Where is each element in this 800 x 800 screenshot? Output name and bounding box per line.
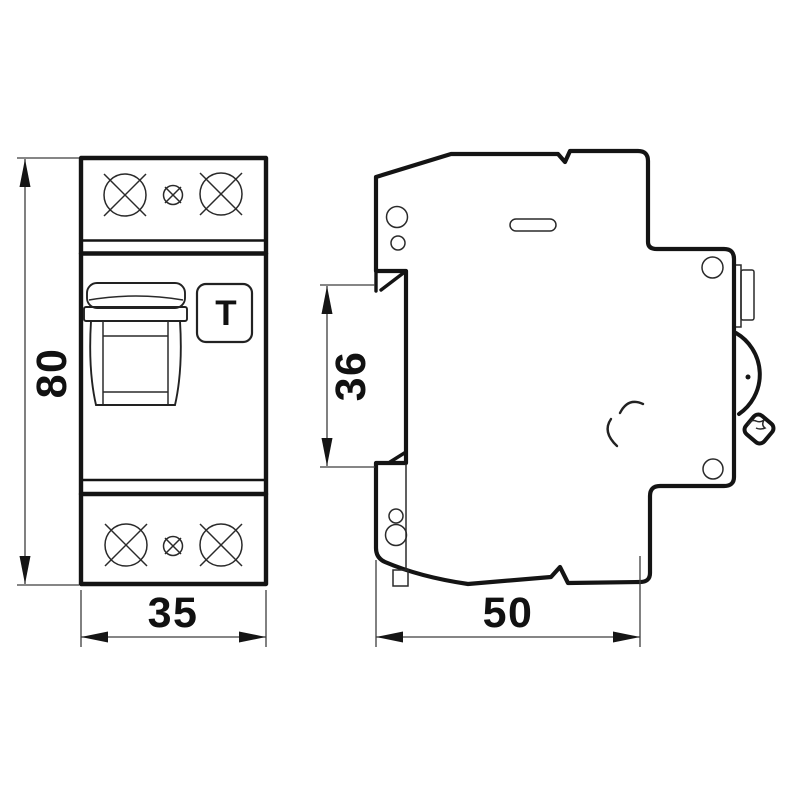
dim-label-width: 35 bbox=[148, 589, 199, 637]
side-profile-outline bbox=[376, 151, 734, 584]
dim-label-height: 80 bbox=[28, 348, 76, 399]
dimension-height: 80 bbox=[17, 158, 79, 585]
technical-drawing: T bbox=[0, 0, 800, 800]
toggle-switch[interactable] bbox=[84, 283, 187, 405]
terminal-screws-bottom bbox=[105, 524, 242, 566]
arrow-left-icon bbox=[376, 632, 403, 643]
drawing-canvas: T bbox=[0, 0, 800, 800]
front-view: T bbox=[81, 158, 266, 584]
screw-top-middle-icon bbox=[164, 186, 183, 205]
dim-label-depth: 50 bbox=[483, 589, 534, 637]
arrow-up-icon bbox=[20, 159, 31, 187]
dimension-width: 35 bbox=[81, 589, 266, 647]
arrow-left-icon bbox=[81, 632, 108, 643]
mechanism-boss-arc bbox=[736, 333, 760, 414]
test-button-label: T bbox=[215, 294, 236, 333]
dimension-recess: 36 bbox=[320, 285, 375, 467]
arrow-down-icon bbox=[20, 556, 31, 584]
arrow-down-icon bbox=[322, 438, 333, 466]
toggle-lever-side[interactable] bbox=[742, 412, 776, 446]
side-hole-right-upper bbox=[702, 257, 723, 278]
lever-break-line bbox=[748, 420, 765, 429]
screw-top-left-icon bbox=[104, 174, 146, 216]
terminal-screws-top bbox=[104, 173, 242, 216]
screw-bottom-middle-icon bbox=[164, 537, 183, 556]
din-hook-bottom-chamfer bbox=[390, 452, 406, 462]
arrow-right-icon bbox=[239, 632, 266, 643]
test-button[interactable]: T bbox=[197, 284, 252, 342]
pivot-dot bbox=[746, 375, 751, 380]
dimension-depth: 50 bbox=[376, 556, 640, 647]
side-view bbox=[376, 151, 776, 586]
screw-bottom-left-icon bbox=[105, 524, 147, 566]
side-hole-right-lower bbox=[703, 459, 723, 479]
terminal-block-cover bbox=[741, 270, 754, 320]
din-clip-tab[interactable] bbox=[393, 570, 408, 586]
side-slot bbox=[510, 219, 556, 231]
toggle-collar bbox=[84, 307, 187, 321]
side-hole-flange-small bbox=[389, 509, 403, 523]
din-hook-top-diagonal bbox=[381, 271, 406, 290]
front-body-outline bbox=[81, 158, 266, 584]
side-hole-top-small bbox=[391, 236, 405, 250]
window-arc-upper bbox=[620, 402, 643, 413]
arrow-up-icon bbox=[322, 286, 333, 314]
screw-top-right-icon bbox=[200, 173, 242, 215]
dim-label-recess: 36 bbox=[327, 351, 375, 402]
screw-bottom-right-icon bbox=[200, 524, 242, 566]
arrow-right-icon bbox=[613, 632, 640, 643]
window-arc-lower bbox=[608, 419, 617, 446]
side-hole-flange-large bbox=[386, 525, 407, 546]
toggle-cap-curve bbox=[89, 296, 183, 300]
terminal-block-side bbox=[736, 265, 754, 327]
side-hole-top-large bbox=[387, 207, 408, 228]
